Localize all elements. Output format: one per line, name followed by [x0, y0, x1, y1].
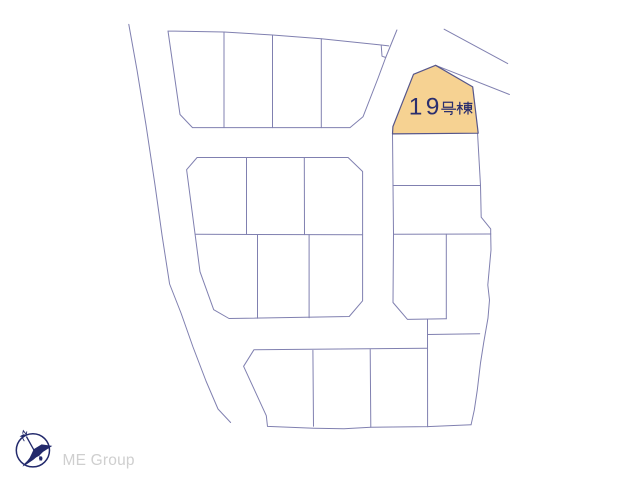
svg-text:19: 19	[409, 94, 443, 121]
svg-text:ME Group: ME Group	[63, 452, 135, 469]
